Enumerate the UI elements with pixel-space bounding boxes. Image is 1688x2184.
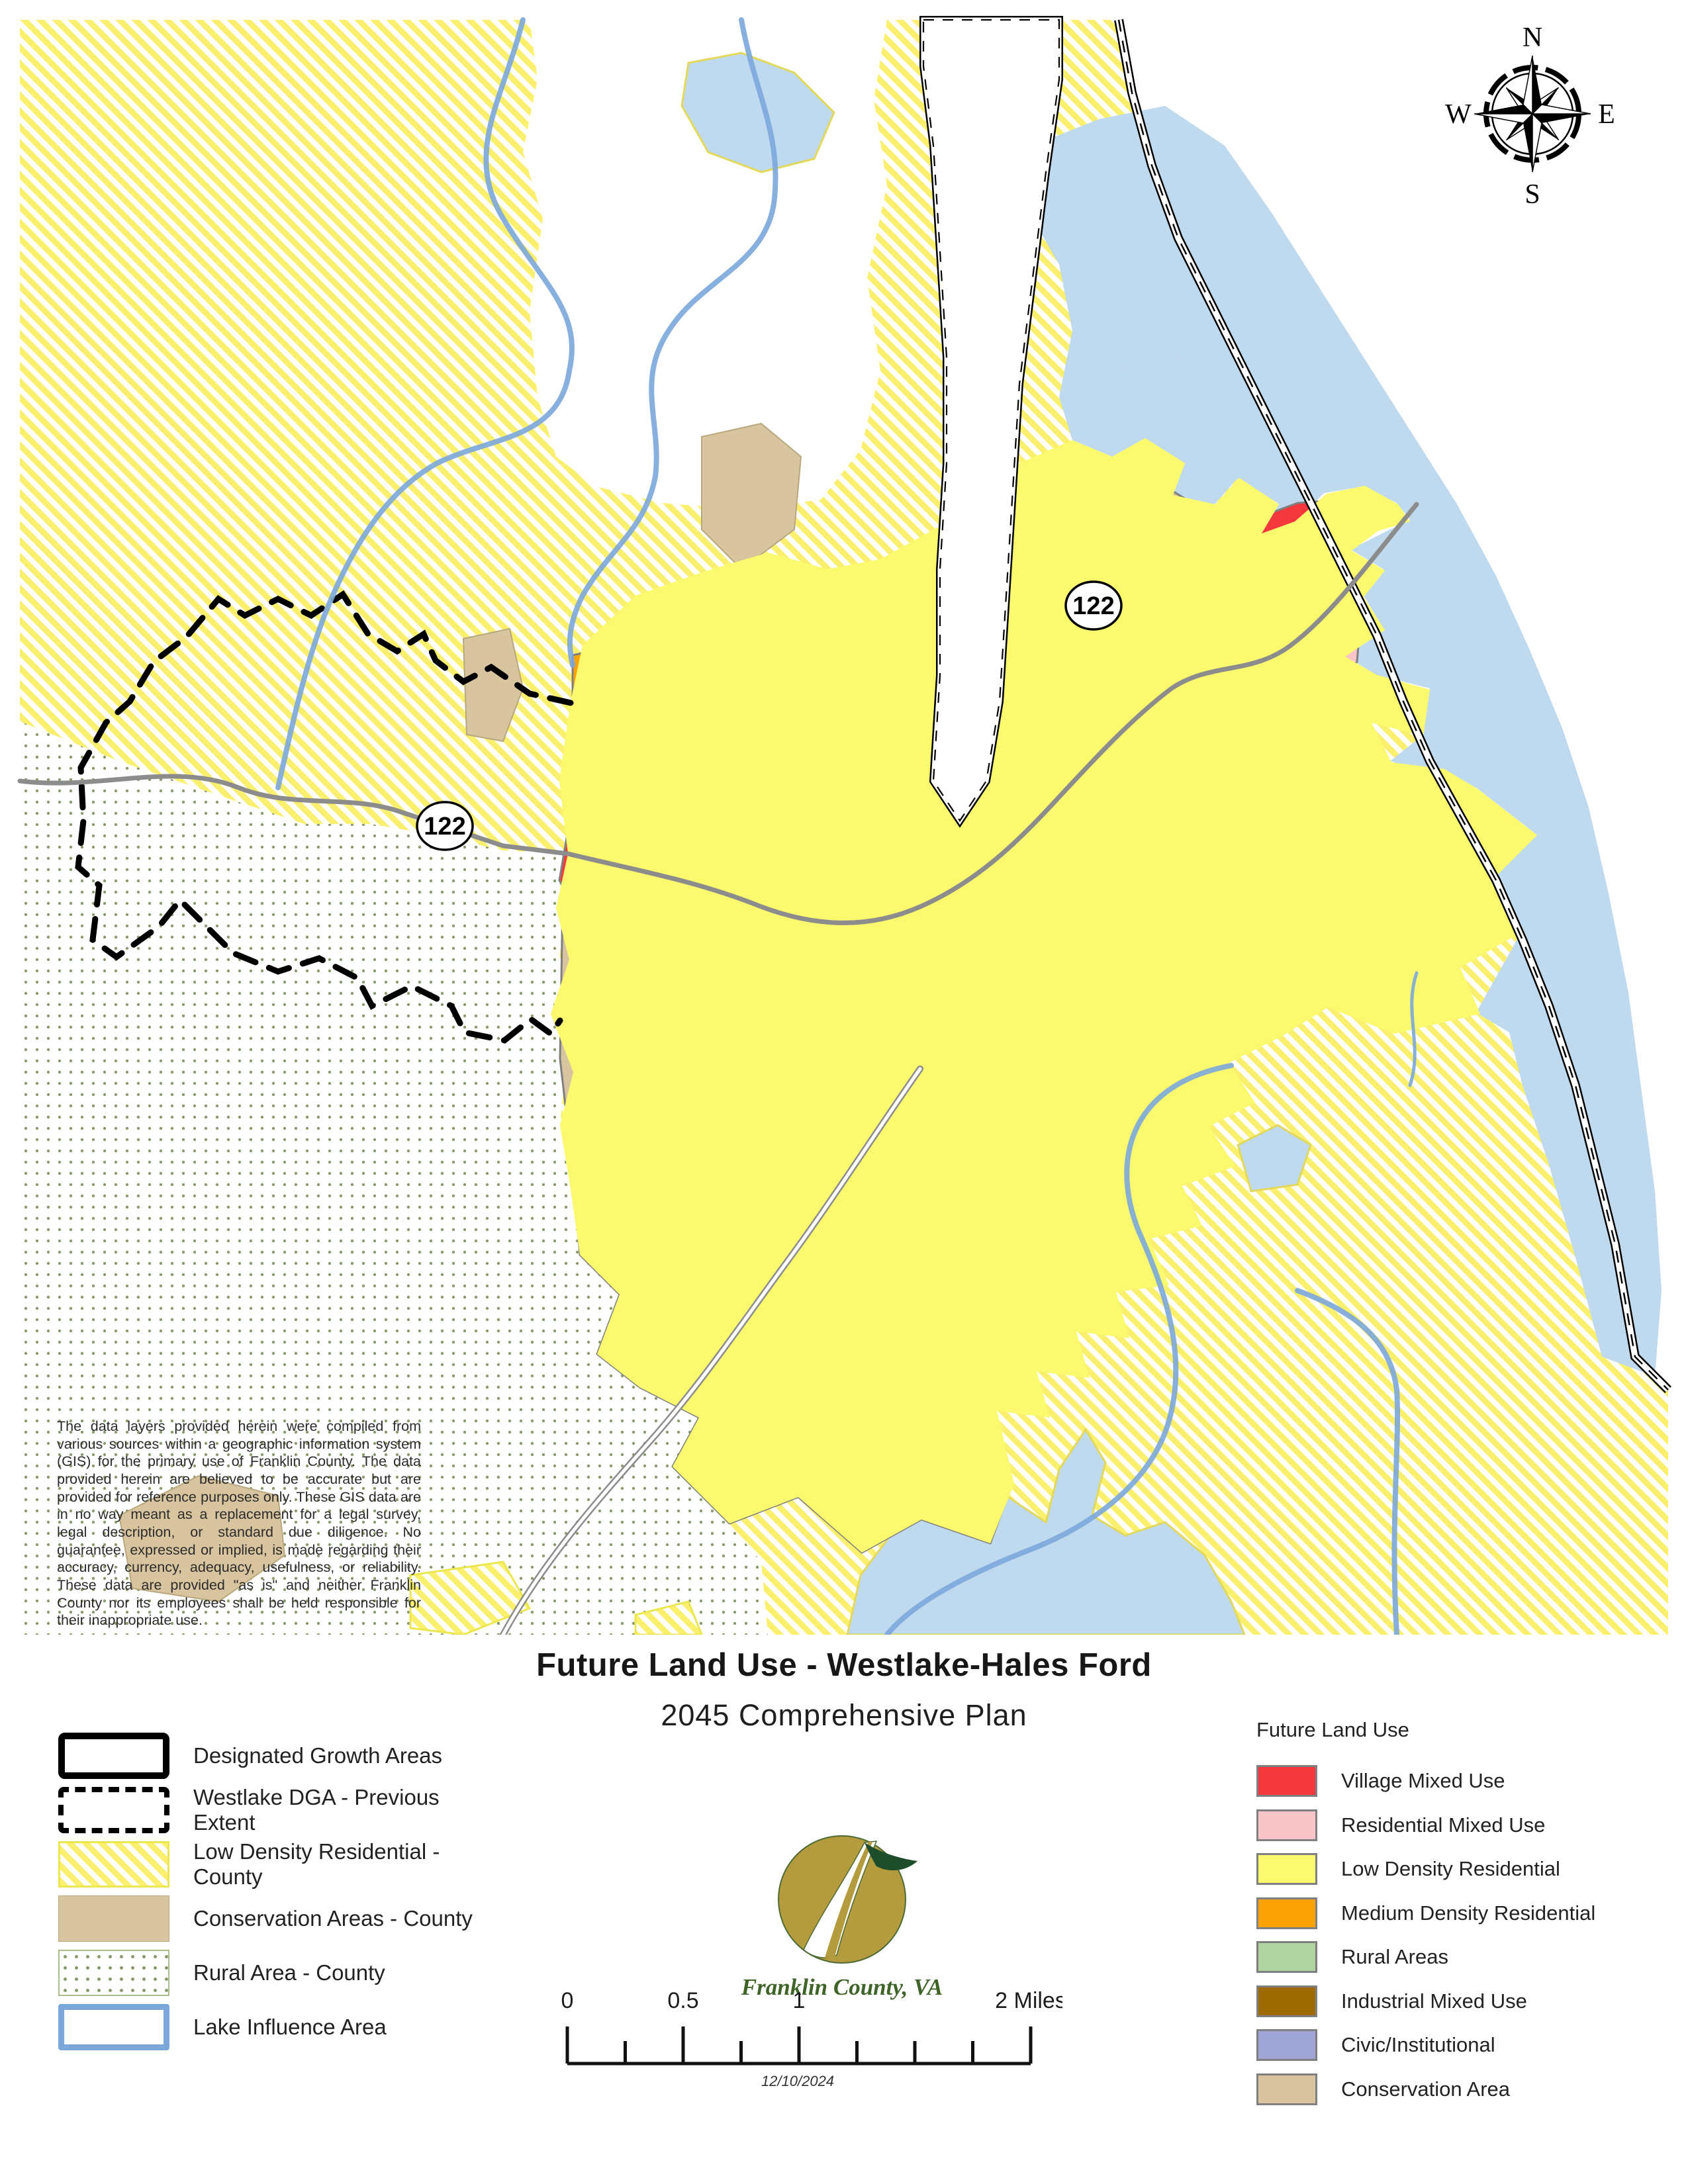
color-swatch-icon (1256, 1985, 1317, 2017)
map-canvas: 122 122 N E S (0, 0, 1688, 1635)
legend-label: Medium Density Residential (1341, 1901, 1595, 1925)
route-shield-northeast: 122 (1066, 582, 1121, 629)
scale-label-2miles: 2 Miles (995, 1988, 1062, 2013)
scale-bar-graphic: 0 0.5 1 2 Miles (559, 1985, 1062, 2071)
legend-header: Future Land Use (1256, 1718, 1667, 1742)
map-sheet: 122 122 N E S (0, 0, 1688, 2184)
compass-west-label: W (1445, 99, 1472, 130)
map-date: 12/10/2024 (559, 2073, 1036, 2090)
map-title: Future Land Use - Westlake-Hales Ford (0, 1647, 1688, 1684)
previous-extent-swatch-icon (58, 1787, 169, 1833)
franklin-county-logo: Franklin County, VA (716, 1833, 968, 2001)
legend-item-conservation-county: Conservation Areas - County (58, 1891, 482, 1946)
county-logo-icon (763, 1833, 921, 1966)
legend-item-low-density-residential: Low Density Residential (1256, 1847, 1667, 1891)
legend-label: Civic/Institutional (1341, 2033, 1495, 2057)
legend-item-low-density-county: Low Density Residential - County (58, 1837, 482, 1891)
land-use-map: 122 122 N E S (0, 0, 1688, 1635)
legend-item-rural-county: Rural Area - County (58, 1946, 482, 2000)
legend-future-land-use: Future Land Use Village Mixed Use Reside… (1256, 1718, 1667, 2111)
legend-item-residential-mixed-use: Residential Mixed Use (1256, 1803, 1667, 1848)
compass-south-label: S (1524, 179, 1540, 210)
legend-item-conservation-area: Conservation Area (1256, 2068, 1667, 2112)
scale-label-0: 0 (561, 1988, 574, 2013)
legend-label: Rural Areas (1341, 1945, 1448, 1969)
legend-label: Residential Mixed Use (1341, 1813, 1545, 1837)
lake-influence-swatch-icon (58, 2004, 169, 2050)
legend-item-rural-areas: Rural Areas (1256, 1935, 1667, 1979)
legend-label: Village Mixed Use (1341, 1769, 1505, 1793)
legend-label: Industrial Mixed Use (1341, 1989, 1527, 2013)
legend-item-previous-extent: Westlake DGA - Previous Extent (58, 1783, 482, 1837)
color-swatch-icon (1256, 1897, 1317, 1929)
legend-item-civic-institutional: Civic/Institutional (1256, 2023, 1667, 2068)
legend-label: Westlake DGA - Previous Extent (193, 1785, 482, 1835)
rural-dots-swatch-icon (58, 1950, 169, 1996)
compass-east-label: E (1598, 99, 1615, 130)
legend-item-village-mixed-use: Village Mixed Use (1256, 1759, 1667, 1803)
color-swatch-icon (1256, 1809, 1317, 1841)
color-swatch-icon (1256, 1941, 1317, 1973)
legend-label: Lake Influence Area (193, 2015, 387, 2040)
legend-label: Conservation Areas - County (193, 1906, 473, 1931)
gis-disclaimer-text: The data layers provided herein were com… (57, 1418, 421, 1629)
scale-bar: 0 0.5 1 2 Miles 12/10/2024 (559, 1985, 1062, 2075)
legend-item-lake-influence: Lake Influence Area (58, 2000, 482, 2054)
color-swatch-icon (1256, 2029, 1317, 2061)
conservation-swatch-icon (58, 1895, 169, 1942)
legend-label: Conservation Area (1341, 2077, 1510, 2101)
scale-ticks (567, 2026, 1031, 2064)
legend-label: Designated Growth Areas (193, 1743, 442, 1768)
legend-item-industrial-mixed-use: Industrial Mixed Use (1256, 1979, 1667, 2024)
color-swatch-icon (1256, 1853, 1317, 1885)
legend-label: Low Density Residential - County (193, 1839, 482, 1889)
color-swatch-icon (1256, 1765, 1317, 1797)
compass-north-label: N (1523, 23, 1542, 53)
scale-label-05: 0.5 (667, 1988, 698, 2013)
route-shield-west: 122 (417, 802, 473, 850)
dga-swatch-icon (58, 1733, 169, 1779)
legend-boundaries: Designated Growth Areas Westlake DGA - P… (58, 1729, 482, 2054)
color-swatch-icon (1256, 2073, 1317, 2105)
legend-item-dga: Designated Growth Areas (58, 1729, 482, 1783)
scale-label-1: 1 (793, 1988, 806, 2013)
legend-label: Rural Area - County (193, 1960, 385, 1985)
legend-item-medium-density-residential: Medium Density Residential (1256, 1891, 1667, 1936)
legend-label: Low Density Residential (1341, 1857, 1560, 1881)
hatch-swatch-icon (58, 1841, 169, 1888)
route-shield-label: 122 (424, 813, 465, 841)
route-shield-label: 122 (1072, 592, 1114, 620)
